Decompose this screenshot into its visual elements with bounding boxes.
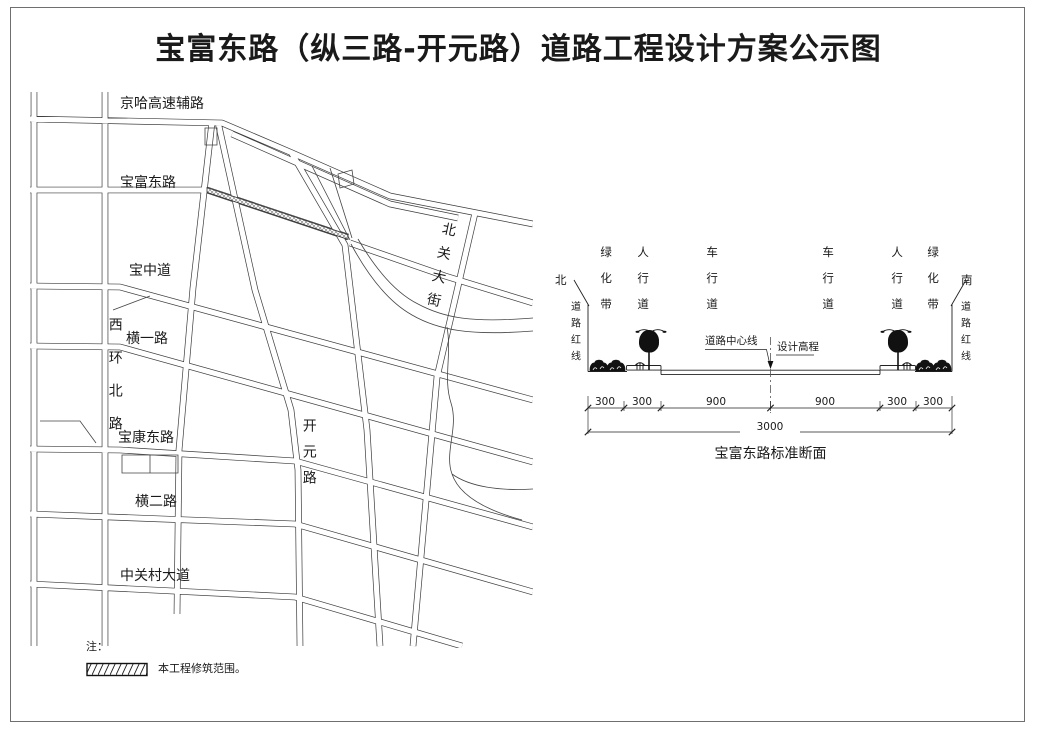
shrub-icon bbox=[933, 360, 951, 371]
shrub-icon bbox=[916, 360, 934, 371]
shrub-icon bbox=[590, 360, 608, 371]
section-red-line-label-right: 道路红线 bbox=[958, 301, 969, 367]
sidewalk-slab-left bbox=[627, 366, 662, 371]
map-road-label-baokang: 宝康东路 bbox=[118, 431, 174, 446]
page: 宝富东路（纵三路-开元路）道路工程设计方案公示图 京哈高速辅路 宝富东路 宝中道… bbox=[0, 0, 1037, 733]
map-road-label-hengyi: 横一路 bbox=[126, 332, 168, 347]
map-road-label-zhongguancun: 中关村大道 bbox=[120, 569, 190, 584]
page-title: 宝富东路（纵三路-开元路）道路工程设计方案公示图 bbox=[0, 24, 1037, 68]
dimension-value: 300 bbox=[913, 396, 953, 408]
dimension-total-value: 3000 bbox=[740, 421, 800, 433]
dimension-value: 900 bbox=[805, 396, 845, 408]
map-road-label-kaiyuan: 开元路 bbox=[301, 418, 316, 496]
note-prefix: 注： bbox=[86, 641, 108, 653]
note-legend-text: 本工程修筑范围。 bbox=[158, 663, 246, 675]
legend-hatch-swatch bbox=[86, 662, 152, 678]
small-plant-icon bbox=[636, 363, 645, 370]
small-plant-icon bbox=[903, 363, 912, 370]
location-map bbox=[30, 92, 533, 648]
dimension-value: 900 bbox=[696, 396, 736, 408]
shrub-icon bbox=[607, 360, 625, 371]
section-lane-label-greenbelt-left: 绿化带 bbox=[600, 246, 612, 324]
red-line-boundaries bbox=[574, 280, 966, 372]
section-south-label: 南 bbox=[961, 274, 973, 286]
section-lane-label-greenbelt-right: 绿化带 bbox=[927, 246, 939, 324]
map-road-label-baozhong: 宝中道 bbox=[129, 264, 171, 279]
dimension-value: 300 bbox=[877, 396, 917, 408]
map-road-label-baofu: 宝富东路 bbox=[120, 176, 176, 191]
map-road-label-jingha: 京哈高速辅路 bbox=[120, 97, 204, 112]
section-lane-label-sidewalk-left: 人行道 bbox=[637, 246, 649, 324]
section-lane-label-sidewalk-right: 人行道 bbox=[891, 246, 903, 324]
design-elevation-arrow bbox=[768, 361, 774, 369]
map-road-label-henger: 横二路 bbox=[135, 495, 177, 510]
section-north-label: 北 bbox=[555, 274, 567, 286]
section-centerline-label: 道路中心线 bbox=[705, 336, 758, 347]
section-lane-label-roadway-left: 车行道 bbox=[706, 246, 718, 324]
section-caption: 宝富东路标准断面 bbox=[678, 443, 863, 463]
section-red-line-label-left: 道路红线 bbox=[568, 301, 579, 367]
section-design-elevation-label: 设计高程 bbox=[777, 342, 819, 353]
section-lane-label-roadway-right: 车行道 bbox=[822, 246, 834, 324]
dimension-value: 300 bbox=[622, 396, 662, 408]
dimension-value: 300 bbox=[585, 396, 625, 408]
